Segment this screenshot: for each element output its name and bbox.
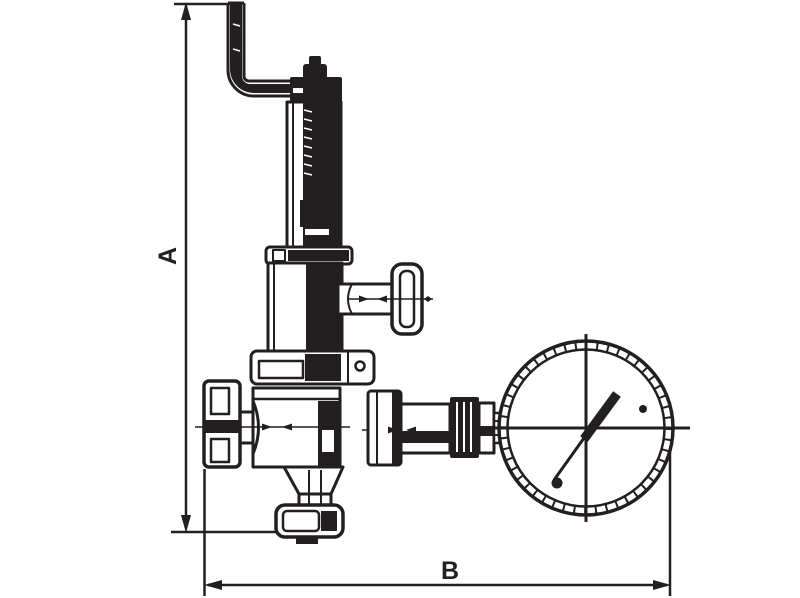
inlet-union <box>204 381 254 467</box>
bottom-flange-dark <box>321 511 337 531</box>
outlet-pipe-band <box>402 431 449 443</box>
body-dark-window <box>322 430 334 452</box>
bottom-flange-inner <box>283 511 319 531</box>
outlet-cone <box>284 467 343 494</box>
outlet-fittings <box>362 391 506 465</box>
coupling-nut-highlight <box>293 88 303 93</box>
bonnet-tube <box>287 102 341 250</box>
pipe-inner-edge <box>244 3 296 81</box>
body-flange-bolt <box>356 362 365 371</box>
dim-b-arrow-left <box>204 580 222 590</box>
dim-b-label: B <box>441 557 459 585</box>
needle-counterweight <box>552 478 563 489</box>
handle-centerline-diamond <box>424 296 432 302</box>
gauge-marker-dot <box>639 405 647 413</box>
dim-b-arrow-right <box>653 580 671 590</box>
bonnet-flange-fill <box>288 250 349 261</box>
diagram-canvas: A B <box>0 0 800 598</box>
dim-a-arrow-down <box>181 515 191 533</box>
side-t-handle <box>338 264 433 334</box>
body-flange-inner <box>259 361 303 378</box>
gauge-adapter-band <box>480 426 493 436</box>
spindle-cap <box>303 64 327 79</box>
adjusting-spindle <box>290 56 342 103</box>
bonnet-flange <box>266 247 352 264</box>
body-flange <box>251 351 374 384</box>
rod-gap <box>305 229 329 235</box>
threaded-rod <box>303 102 341 250</box>
pressure-gauge <box>495 334 690 522</box>
spring-chamber <box>268 263 342 351</box>
valve-technical-drawing: A B <box>0 0 800 598</box>
bonnet-flange-step <box>273 250 285 261</box>
inlet-fitting-upper <box>211 388 229 414</box>
rod-lock-nut <box>300 200 332 227</box>
dim-a-label: A <box>154 247 182 265</box>
bottom-outlet <box>276 467 343 544</box>
inlet-fitting-band <box>205 420 239 433</box>
inlet-fitting-lower <box>211 439 229 462</box>
body-flange-dark <box>305 354 341 381</box>
top-pipe-elbow <box>228 3 296 96</box>
bottom-flange-tab <box>296 537 318 544</box>
outlet-pipe <box>401 404 450 453</box>
